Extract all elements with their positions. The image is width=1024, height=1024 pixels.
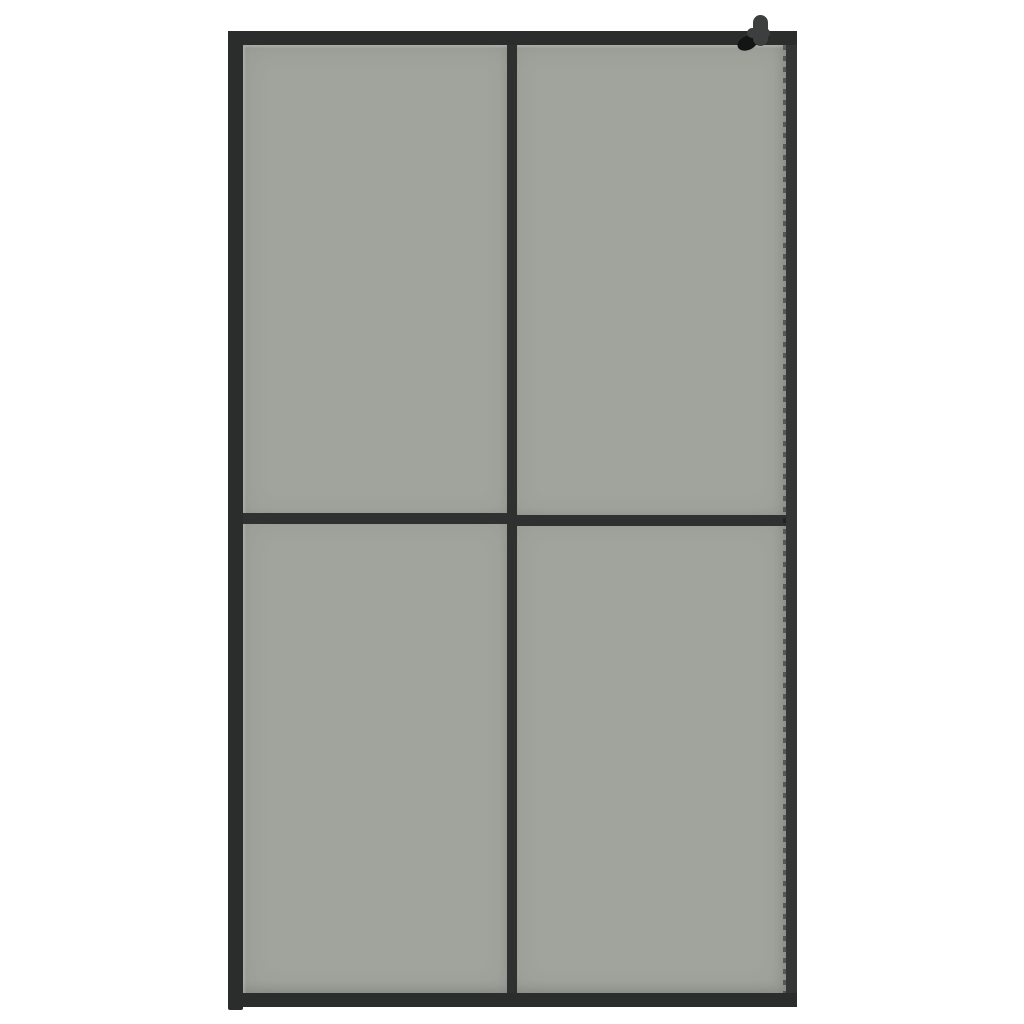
- mullion-horizontal-left-divider: [243, 513, 507, 524]
- glass-pane-top-left: [243, 45, 512, 520]
- glass-pane-bottom-right: [512, 518, 786, 993]
- frame-top-profile: [228, 31, 797, 45]
- seal-strip-right: [783, 45, 786, 993]
- frame-bottom-profile: [228, 993, 797, 1007]
- glass-pane-bottom-left: [243, 518, 512, 993]
- frame-left-wall-profile: [228, 31, 243, 1010]
- frame-right-profile: [786, 31, 797, 1007]
- wall-bracket-knob: [753, 15, 768, 46]
- product-photo-canvas: [0, 0, 1024, 1024]
- mullion-horizontal-right-divider: [507, 515, 786, 526]
- glass-pane-top-right: [512, 45, 786, 520]
- shower-screen-panel: [228, 31, 797, 1007]
